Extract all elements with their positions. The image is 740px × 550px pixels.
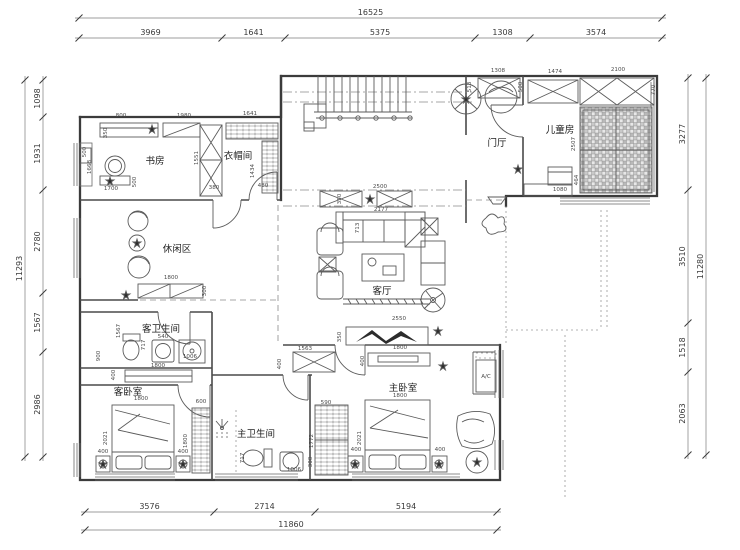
inner-dim-label: 1434 (250, 163, 256, 178)
master-bedroom-furniture (348, 352, 496, 473)
inner-dim-label: 717 (240, 452, 246, 463)
inner-dim-label: 1800 (164, 275, 179, 281)
inner-dim-label: 1800 (183, 433, 189, 448)
inner-dim-label: 400 (111, 369, 117, 380)
inner-dim-label: 400 (178, 449, 189, 455)
inner-dim-label: 1700 (104, 186, 119, 192)
inner-dim-label: 1772 (309, 434, 315, 448)
dim-segment-label: 2714 (254, 502, 274, 511)
living-room-furniture (317, 191, 506, 370)
inner-dim-label: 1980 (177, 113, 192, 119)
inner-dim-label: 2500 (373, 184, 388, 190)
inner-dim-label: 2550 (392, 316, 407, 322)
inner-dim-label: 350 (103, 127, 109, 138)
dim-segment-label: 3576 (139, 502, 159, 511)
inner-dim-label: 480 (258, 183, 269, 189)
dim-total-label: 11280 (696, 254, 705, 279)
inner-dim-label: 350 (337, 193, 343, 204)
floor-plan-drawing: 1652511293112801186039691641537513083574… (0, 0, 740, 550)
dim-segment-label: 2063 (678, 403, 687, 423)
inner-dim-label: 1308 (491, 68, 506, 74)
room-name-labels: 书房衣帽间门厅儿童房休闲区客厅客卫生间客卧室主卫生间主卧室 (114, 124, 575, 440)
room-label: 客卫生间 (142, 323, 180, 335)
room-label: 客卧室 (114, 386, 143, 398)
room-label: 客厅 (372, 285, 392, 297)
inner-dim-label: A/C (481, 374, 491, 380)
dim-total-label: 11860 (278, 520, 303, 529)
inner-dim-label: 1474 (548, 69, 563, 75)
inner-dim-label: 1641 (243, 111, 258, 117)
inner-dim-label: 2100 (611, 67, 626, 73)
room-label: 儿童房 (546, 124, 575, 136)
staircase (304, 76, 412, 131)
inner-dim-label: 2021 (357, 430, 363, 445)
inner-dim-label: 1006 (287, 467, 302, 473)
inner-dim-label: 500 (132, 176, 138, 187)
room-label: 衣帽间 (224, 150, 253, 162)
inner-dim-label: 590 (321, 400, 332, 406)
inner-dim-label: 300 (308, 456, 314, 467)
dim-total-label: 11293 (15, 256, 24, 281)
inner-dim-label: 1668 (87, 159, 93, 174)
dim-segment-label: 1308 (492, 28, 512, 37)
floor-plan-page: 1652511293112801186039691641537513083574… (0, 0, 740, 550)
dim-chain-line: 10981931278015672986 (33, 76, 47, 461)
master-bathroom-fixtures (216, 410, 303, 475)
inner-dim-label: 2507 (571, 136, 577, 151)
dim-segment-label: 1931 (33, 143, 42, 163)
inner-dim-label: 464 (574, 174, 580, 185)
inner-dim-label: 717 (141, 339, 147, 350)
inner-dim-label: 400 (277, 358, 283, 369)
leisure-furniture (122, 211, 203, 299)
inner-dim-label: 1563 (298, 346, 313, 352)
room-label: 主卧室 (389, 382, 418, 394)
inner-dim-label: 600 (196, 399, 207, 405)
dim-total-label: 16525 (358, 8, 383, 17)
dim-segment-label: 3969 (140, 28, 160, 37)
dim-chain-line: 357627145194 (81, 502, 501, 516)
inner-dim-label: 400 (351, 447, 362, 453)
room-label: 书房 (145, 155, 164, 167)
dim-segment-label: 1567 (33, 312, 42, 332)
inner-dim-label: 380 (209, 185, 220, 191)
dim-total-line: 11293 (15, 76, 29, 461)
room-label: 主卫生间 (237, 428, 275, 440)
dim-segment-label: 2780 (33, 231, 42, 251)
inner-dim-label: 500 (518, 81, 524, 92)
dim-total-line: 11280 (696, 74, 710, 459)
dim-total-line: 16525 (75, 8, 666, 22)
inner-dim-label: 350 (337, 331, 343, 342)
inner-dim-label: 1800 (393, 345, 408, 351)
inner-dim-label: 500 (82, 146, 88, 157)
dim-total-line: 11860 (81, 520, 501, 534)
inner-dim-label: 400 (98, 449, 109, 455)
children-room-furniture (524, 78, 654, 196)
inner-dim-label: 713 (355, 222, 361, 233)
dim-segment-label: 1098 (33, 88, 42, 108)
corridor-wardrobe (315, 405, 348, 475)
dim-segment-label: 2986 (33, 394, 42, 414)
hall-shoe-cabinet (478, 78, 522, 173)
inner-dim-label: 1080 (553, 187, 568, 193)
inner-dim-label: 2021 (103, 430, 109, 445)
guest-bedroom-furniture (96, 405, 210, 473)
inner-dim-label: 400 (435, 447, 446, 453)
inner-dim-label: 300 (202, 285, 208, 296)
dim-segment-label: 1641 (243, 28, 263, 37)
room-label: 休闲区 (163, 243, 192, 255)
inner-dim-label: 1567 (116, 323, 122, 338)
dim-segment-label: 1518 (678, 337, 687, 357)
entry-decor (451, 81, 517, 114)
dim-segment-label: 5194 (396, 502, 416, 511)
inner-dim-label: 513 (467, 81, 473, 92)
dim-chain-line: 3277351015182063 (678, 74, 692, 459)
dim-chain-line: 39691641537513083574 (75, 28, 666, 42)
inner-dim-label: 400 (360, 355, 366, 366)
room-label: 门厅 (487, 137, 507, 149)
dim-segment-label: 3277 (678, 124, 687, 144)
dim-segment-label: 3510 (678, 246, 687, 266)
inner-dim-label: 1006 (183, 354, 198, 360)
inner-dim-label: 1551 (194, 150, 200, 165)
inner-dim-label: 1800 (151, 363, 166, 369)
inner-dim-label: 2177 (374, 207, 389, 213)
inner-dim-label: 900 (96, 350, 102, 361)
inner-dim-label: 800 (116, 113, 127, 119)
dim-segment-label: 3574 (586, 28, 606, 37)
inner-dim-label: 770 (651, 84, 657, 95)
dim-segment-label: 5375 (370, 28, 390, 37)
